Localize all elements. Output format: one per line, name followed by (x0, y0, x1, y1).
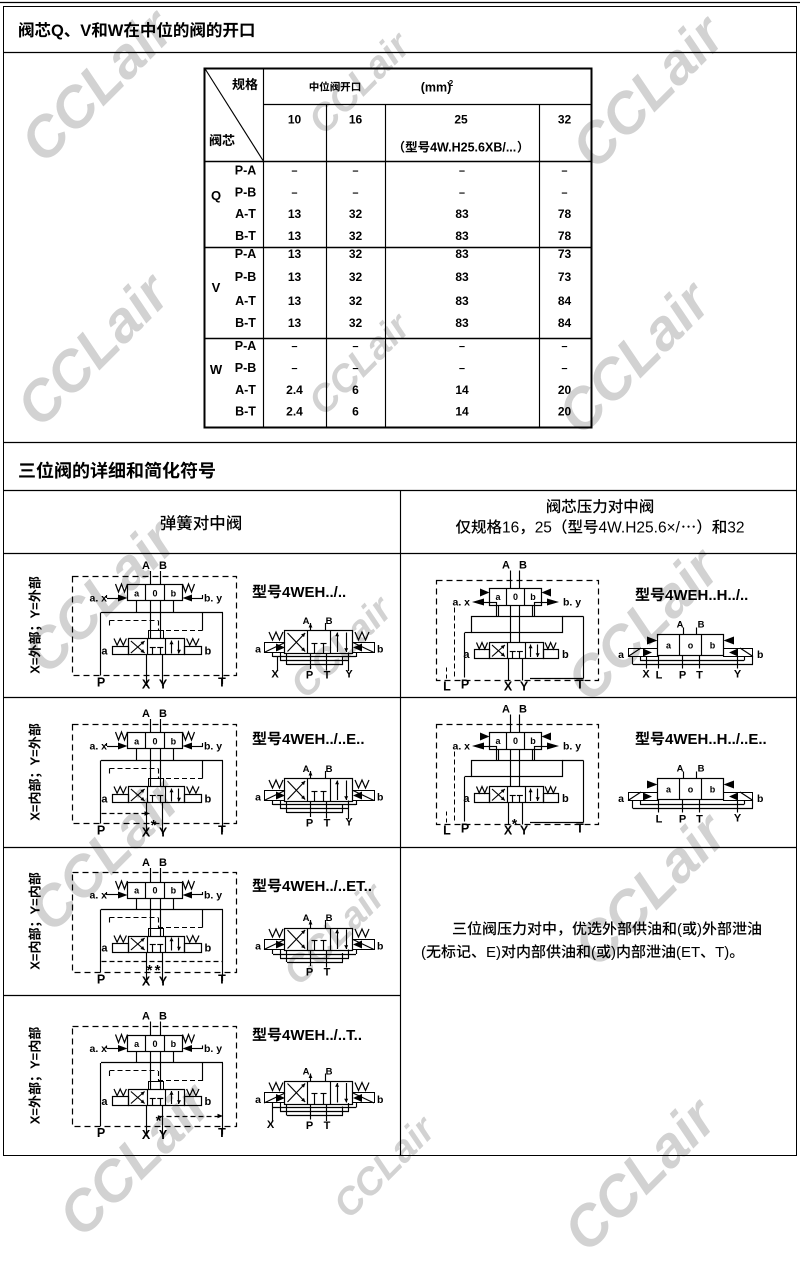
svg-text:P: P (306, 818, 313, 830)
svg-text:P: P (97, 676, 105, 690)
svg-text:a: a (495, 736, 501, 746)
svg-text:P: P (306, 967, 313, 979)
svg-text:Y=: Y= (28, 602, 43, 619)
svg-text:L: L (656, 814, 663, 826)
svg-text:T: T (576, 822, 584, 836)
svg-text:a: a (618, 649, 624, 661)
svg-text:E): E) (486, 944, 501, 961)
svg-text:83: 83 (455, 247, 469, 261)
svg-text:2.4: 2.4 (286, 383, 303, 397)
svg-text:T: T (696, 670, 703, 682)
svg-text:32: 32 (349, 294, 363, 308)
svg-text:0: 0 (513, 592, 518, 602)
svg-text:b: b (562, 793, 569, 805)
svg-text:B: B (326, 764, 333, 775)
svg-text:P: P (461, 678, 469, 692)
svg-text:P: P (306, 670, 313, 682)
svg-text:6: 6 (352, 405, 359, 419)
svg-text:(mm): (mm) (421, 81, 452, 95)
svg-text:Y: Y (345, 817, 353, 829)
svg-text:X: X (271, 669, 279, 681)
svg-text:4W.H25.6×/: 4W.H25.6×/ (599, 520, 681, 537)
svg-text:32: 32 (349, 229, 363, 243)
svg-text:X: X (267, 1119, 275, 1131)
svg-text:a. x: a. x (89, 593, 107, 605)
svg-text:B: B (159, 708, 167, 720)
svg-text:13: 13 (288, 270, 302, 284)
svg-text:b: b (377, 1094, 383, 1106)
svg-text:T: T (324, 967, 331, 979)
svg-text:78: 78 (558, 207, 572, 221)
svg-text:b: b (757, 649, 763, 661)
svg-text:a: a (255, 941, 261, 953)
svg-text:84: 84 (558, 294, 572, 308)
svg-text:P: P (97, 1126, 105, 1140)
svg-text:A-T: A-T (235, 294, 256, 308)
svg-text:a: a (255, 792, 261, 804)
svg-text:(: ( (421, 944, 426, 961)
svg-text:32: 32 (558, 113, 572, 127)
svg-text:a: a (101, 646, 108, 658)
svg-text:*: * (156, 1113, 162, 1130)
svg-text:a: a (495, 592, 501, 602)
svg-text:*: * (147, 962, 153, 979)
svg-text:Q: Q (51, 22, 64, 40)
svg-text:W: W (210, 362, 223, 377)
svg-text:a: a (134, 737, 140, 747)
svg-text:a: a (618, 793, 624, 805)
svg-text:2.4: 2.4 (286, 405, 303, 419)
svg-text:P-A: P-A (235, 247, 257, 261)
svg-text:P: P (97, 973, 105, 987)
svg-text:A: A (303, 913, 310, 924)
svg-text:o: o (688, 641, 694, 651)
svg-text:a. x: a. x (452, 597, 470, 609)
svg-text:P-A: P-A (235, 339, 257, 353)
svg-text:4WEH../..T..: 4WEH../..T.. (282, 1027, 362, 1044)
svg-text:(: ( (591, 944, 596, 961)
svg-text:2: 2 (449, 79, 454, 88)
svg-text:X: X (142, 1128, 151, 1142)
svg-text:25: 25 (454, 113, 468, 127)
svg-text:T: T (324, 1120, 331, 1132)
svg-text:b. y: b. y (204, 593, 222, 605)
svg-text:): ) (697, 921, 702, 938)
svg-text:83: 83 (455, 207, 469, 221)
svg-text:b: b (710, 785, 716, 795)
svg-text:V: V (80, 22, 91, 40)
svg-text:14: 14 (455, 383, 469, 397)
svg-text:b: b (377, 792, 383, 804)
svg-text:16: 16 (502, 520, 519, 537)
svg-text:a. x: a. x (89, 741, 107, 753)
svg-text:0: 0 (513, 736, 518, 746)
svg-text:P-B: P-B (235, 361, 257, 375)
svg-text:W: W (108, 22, 124, 40)
svg-text:P: P (461, 822, 469, 836)
svg-text:13: 13 (288, 229, 302, 243)
svg-text:A: A (303, 616, 310, 627)
svg-text:): ) (611, 944, 616, 961)
svg-text:b: b (171, 886, 177, 896)
svg-text:a: a (101, 1096, 108, 1108)
svg-text:A: A (303, 1067, 310, 1078)
svg-text:B: B (519, 560, 527, 572)
svg-text:b: b (171, 1039, 177, 1049)
svg-text:b: b (377, 941, 383, 953)
svg-text:T: T (324, 670, 331, 682)
svg-text:a. x: a. x (452, 741, 470, 753)
svg-text:32: 32 (349, 270, 363, 284)
svg-text:A: A (502, 560, 510, 572)
svg-text:L: L (443, 680, 451, 694)
svg-text:b: b (171, 589, 177, 599)
svg-text:Y=: Y= (28, 749, 43, 766)
svg-text:X=: X= (28, 1108, 43, 1125)
svg-text:a. x: a. x (89, 890, 107, 902)
svg-text:P-B: P-B (235, 186, 257, 200)
svg-text:Y: Y (734, 669, 742, 681)
svg-text:X: X (142, 826, 151, 840)
svg-text:83: 83 (455, 229, 469, 243)
svg-text:13: 13 (288, 294, 302, 308)
svg-text:83: 83 (455, 294, 469, 308)
svg-text:0: 0 (152, 737, 157, 747)
svg-text:16: 16 (349, 113, 363, 127)
svg-text:P: P (97, 824, 105, 838)
svg-text:b: b (205, 943, 212, 955)
svg-text:V: V (212, 280, 221, 295)
svg-text:4WEH../..ET..: 4WEH../..ET.. (282, 878, 372, 895)
svg-text:6: 6 (352, 383, 359, 397)
svg-text:A: A (142, 857, 150, 869)
svg-text:T: T (218, 973, 226, 987)
svg-text:32: 32 (349, 207, 363, 221)
svg-text:a. x: a. x (89, 1043, 107, 1055)
svg-text:a: a (255, 1094, 261, 1106)
svg-text:32: 32 (727, 520, 744, 537)
svg-text:A: A (142, 708, 150, 720)
svg-text:20: 20 (558, 405, 572, 419)
svg-text:A-T: A-T (235, 207, 256, 221)
svg-text:B: B (698, 764, 705, 775)
svg-text:A: A (142, 1011, 150, 1023)
svg-text:Q: Q (211, 188, 221, 203)
svg-text:T: T (696, 814, 703, 826)
svg-text:0: 0 (152, 1039, 157, 1049)
svg-text:P-A: P-A (235, 164, 257, 178)
svg-text:X: X (142, 678, 151, 692)
svg-text:b: b (562, 649, 569, 661)
svg-text:14: 14 (455, 405, 469, 419)
svg-text:b: b (530, 592, 536, 602)
svg-text:25: 25 (535, 520, 552, 537)
svg-text:Y: Y (159, 826, 168, 840)
svg-text:Y: Y (520, 824, 529, 838)
svg-text:P-B: P-B (235, 270, 257, 284)
svg-text:X: X (504, 680, 513, 694)
svg-text:4W.H25.6XB/...: 4W.H25.6XB/... (430, 141, 516, 155)
svg-text:X=: X= (28, 657, 43, 674)
svg-text:T: T (218, 1126, 226, 1140)
svg-text:b: b (530, 736, 536, 746)
svg-text:B: B (159, 560, 167, 572)
svg-text:4WEH../..E..: 4WEH../..E.. (282, 731, 365, 748)
svg-text:a: a (666, 641, 672, 651)
svg-text:b: b (171, 737, 177, 747)
svg-text:B-T: B-T (235, 229, 256, 243)
svg-text:A: A (502, 704, 510, 716)
svg-text:T: T (218, 824, 226, 838)
svg-text:73: 73 (558, 270, 572, 284)
svg-text:X: X (642, 669, 650, 681)
svg-text:32: 32 (349, 247, 363, 261)
svg-text:A-T: A-T (235, 383, 256, 397)
svg-text:A: A (677, 764, 684, 775)
svg-text:b: b (757, 793, 763, 805)
svg-text:78: 78 (558, 229, 572, 243)
svg-text:b. y: b. y (563, 597, 581, 609)
svg-text:83: 83 (455, 270, 469, 284)
svg-text:T: T (324, 818, 331, 830)
svg-text:0: 0 (152, 886, 157, 896)
svg-text:*: * (155, 962, 161, 979)
svg-text:b: b (377, 644, 383, 656)
svg-text:Y: Y (159, 678, 168, 692)
svg-text:84: 84 (558, 316, 572, 330)
svg-text:o: o (688, 785, 694, 795)
svg-text:10: 10 (288, 113, 302, 127)
svg-text:P: P (306, 1120, 313, 1132)
svg-text:B: B (326, 1067, 333, 1078)
svg-text:a: a (101, 794, 108, 806)
svg-text:B: B (159, 1011, 167, 1023)
svg-text:0: 0 (152, 589, 157, 599)
svg-text:B: B (326, 913, 333, 924)
svg-text:a: a (134, 1039, 140, 1049)
svg-text:B-T: B-T (235, 405, 256, 419)
svg-text:B-T: B-T (235, 316, 256, 330)
svg-text:L: L (656, 670, 663, 682)
svg-text:B: B (519, 704, 527, 716)
svg-text:B: B (698, 620, 705, 631)
svg-text:A: A (142, 560, 150, 572)
svg-text:Y=: Y= (28, 898, 43, 915)
svg-text:Y: Y (734, 813, 742, 825)
svg-text:a: a (134, 589, 140, 599)
svg-text:13: 13 (288, 316, 302, 330)
svg-text:73: 73 (558, 247, 572, 261)
svg-text:b: b (205, 794, 212, 806)
svg-text:b: b (710, 641, 716, 651)
svg-text:13: 13 (288, 247, 302, 261)
svg-text:(ET: (ET (676, 944, 700, 961)
svg-text:32: 32 (349, 316, 363, 330)
svg-text:L: L (443, 824, 451, 838)
svg-text:*: * (151, 817, 157, 834)
svg-text:T: T (576, 678, 584, 692)
svg-text:a: a (101, 943, 108, 955)
svg-text:B: B (326, 616, 333, 627)
svg-text:T: T (218, 676, 226, 690)
svg-text:b. y: b. y (204, 1043, 222, 1055)
svg-text:(: ( (677, 921, 682, 938)
svg-text:b. y: b. y (204, 741, 222, 753)
svg-text:4WEH..H../..: 4WEH..H../.. (665, 587, 748, 604)
svg-text:P: P (679, 814, 686, 826)
svg-text:b. y: b. y (204, 890, 222, 902)
svg-text:20: 20 (558, 383, 572, 397)
svg-text:a: a (666, 785, 672, 795)
svg-text:A: A (303, 764, 310, 775)
svg-text:13: 13 (288, 207, 302, 221)
svg-text:4WEH..H../..E..: 4WEH..H../..E.. (665, 731, 767, 748)
svg-text:a: a (255, 644, 261, 656)
svg-text:a: a (134, 886, 140, 896)
svg-text:4WEH../..: 4WEH../.. (282, 584, 346, 601)
svg-text:Y: Y (345, 669, 353, 681)
svg-text:b: b (205, 1096, 212, 1108)
svg-text:A: A (677, 620, 684, 631)
svg-text:Y: Y (159, 1128, 168, 1142)
svg-text:Y: Y (520, 680, 529, 694)
svg-text:T): T) (715, 944, 729, 961)
svg-text:B: B (159, 857, 167, 869)
svg-text:P: P (679, 670, 686, 682)
svg-text:83: 83 (455, 316, 469, 330)
svg-text:b: b (205, 646, 212, 658)
svg-text:*: * (512, 816, 518, 832)
svg-text:Y=: Y= (28, 1052, 43, 1069)
svg-text:b. y: b. y (563, 741, 581, 753)
svg-text:X=: X= (28, 804, 43, 821)
svg-text:X=: X= (28, 953, 43, 970)
